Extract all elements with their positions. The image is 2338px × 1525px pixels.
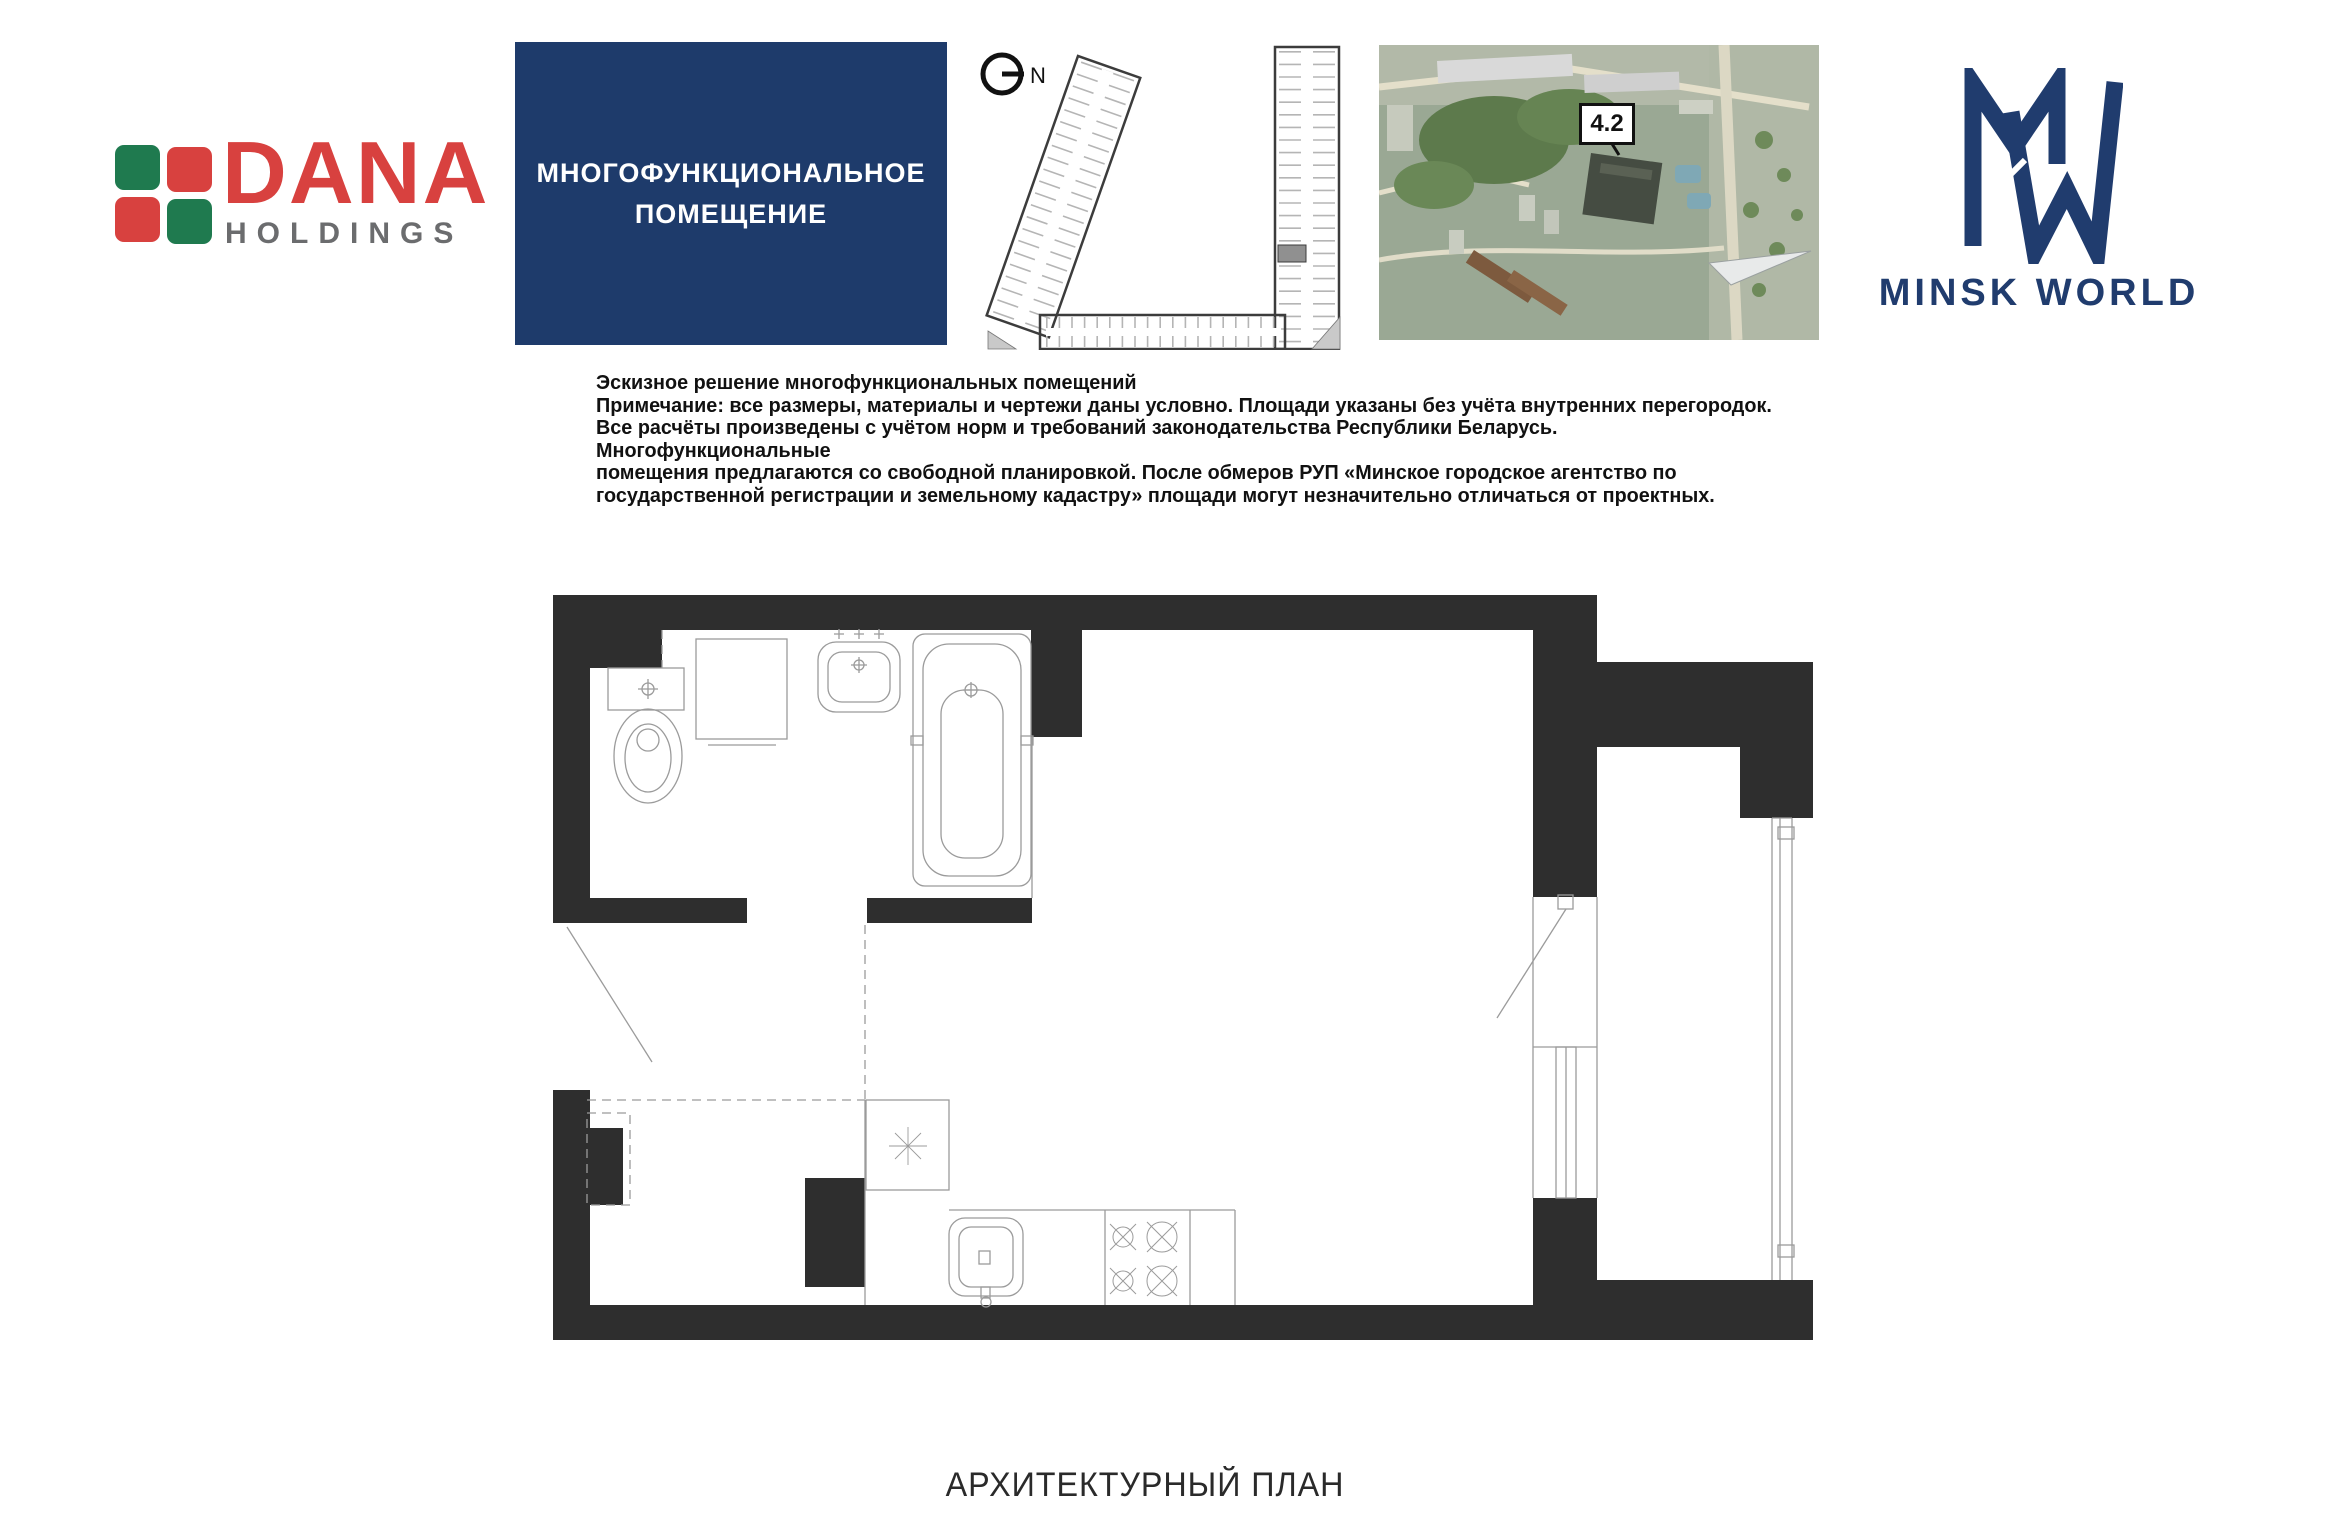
note-line: помещения предлагаются со свободной план… — [596, 462, 1774, 485]
site-right-wing — [1275, 47, 1339, 349]
dana-square-red-tr — [167, 147, 212, 192]
vent-shaft — [866, 1100, 949, 1190]
toilet — [608, 668, 684, 803]
aerial-photo: 4.2 — [1379, 45, 1819, 340]
page: DANA HOLDINGS МНОГОФУНКЦИОНАЛЬНОЕ ПОМЕЩЕ… — [0, 0, 2338, 1525]
loggia-partition — [1497, 895, 1597, 1198]
site-corner-hatch-left — [988, 331, 1016, 349]
dana-square-red-bl — [115, 197, 160, 242]
wall-loggia-top-step — [1740, 743, 1813, 818]
wall-top — [553, 595, 1533, 630]
wall-notch-top — [1031, 630, 1082, 737]
minsk-world-monogram — [1953, 68, 2123, 264]
page-title: АРХИТЕКТУРНЫЙ ПЛАН — [860, 1466, 1430, 1505]
north-arrow-icon: N — [983, 55, 1046, 93]
unit-number-badge: 4.2 — [1579, 103, 1635, 145]
wall-left-notch — [585, 1128, 623, 1205]
disclaimer-note: Эскизное решение многофункциональных пом… — [596, 372, 1774, 507]
highlighted-unit — [1278, 245, 1306, 262]
note-line: Все расчёты произведены с учётом норм и … — [596, 417, 1774, 462]
wall-left-lower — [553, 1090, 590, 1340]
wall-loggia-pier — [1533, 1198, 1597, 1340]
floor-plan — [550, 590, 1820, 1345]
minsk-world-wordmark: MINSK WORLD — [1869, 272, 2209, 315]
unit-type-line1: МНОГОФУНКЦИОНАЛЬНОЕ — [536, 153, 925, 194]
kitchen-counter — [949, 1210, 1235, 1305]
wall-bottom-main — [585, 1305, 1535, 1340]
dana-holdings-label: HOLDINGS — [225, 217, 463, 251]
kitchen-sink — [949, 1218, 1023, 1307]
note-line: Эскизное решение многофункциональных пом… — [596, 372, 1774, 395]
dana-square-green-br — [167, 199, 212, 244]
site-left-wing — [987, 56, 1141, 337]
wall-bath-bottom-left — [553, 898, 747, 923]
site-corner-hatch-right — [1312, 317, 1340, 349]
wall-bath-bottom-right — [867, 898, 1032, 923]
wall-left-upper — [553, 595, 590, 923]
north-label: N — [1030, 63, 1046, 88]
bathtub — [911, 634, 1033, 886]
washing-machine — [696, 639, 787, 745]
loggia-door-swing — [1497, 909, 1566, 1018]
wall-loggia-top — [1597, 662, 1813, 747]
bathroom-sink — [818, 629, 900, 712]
wall-room-right-chunk — [1533, 595, 1597, 897]
entry-door-swing — [567, 927, 652, 1062]
stove-burners — [1110, 1222, 1177, 1296]
dana-wordmark: DANA — [222, 129, 489, 217]
vent-asterisk-icon — [889, 1127, 927, 1165]
loggia-door-pivot — [1558, 895, 1573, 909]
unit-type-line2: ПОМЕЩЕНИЕ — [635, 194, 827, 235]
floor-plan-walls — [553, 595, 1813, 1340]
loggia-glazing — [1772, 818, 1794, 1280]
wall-kitchen-stub — [805, 1178, 865, 1287]
subject-building — [1582, 153, 1662, 224]
building-level-schematic: N — [976, 45, 1350, 350]
wall-loggia-bottom — [1597, 1280, 1813, 1340]
aerial-illustration — [1379, 45, 1819, 340]
site-bottom-wing — [1040, 315, 1285, 349]
note-line: Примечание: все размеры, материалы и чер… — [596, 395, 1774, 418]
unit-type-banner: МНОГОФУНКЦИОНАЛЬНОЕ ПОМЕЩЕНИЕ — [515, 42, 947, 345]
note-line: государственной регистрации и земельному… — [596, 485, 1774, 508]
dana-square-green-tl — [115, 145, 160, 190]
